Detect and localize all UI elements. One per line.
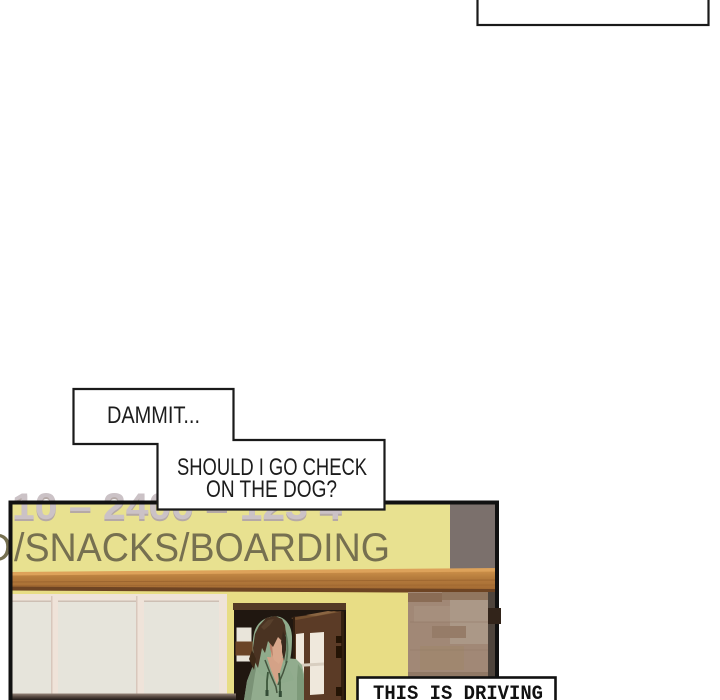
svg-text:DAMMIT...: DAMMIT... xyxy=(107,402,200,429)
svg-text:ON THE DOG?: ON THE DOG? xyxy=(206,476,337,503)
svg-text:THIS IS DRIVING: THIS IS DRIVING xyxy=(373,683,543,700)
svg-text:/SNACKS/BOARDING: /SNACKS/BOARDING xyxy=(14,526,390,570)
